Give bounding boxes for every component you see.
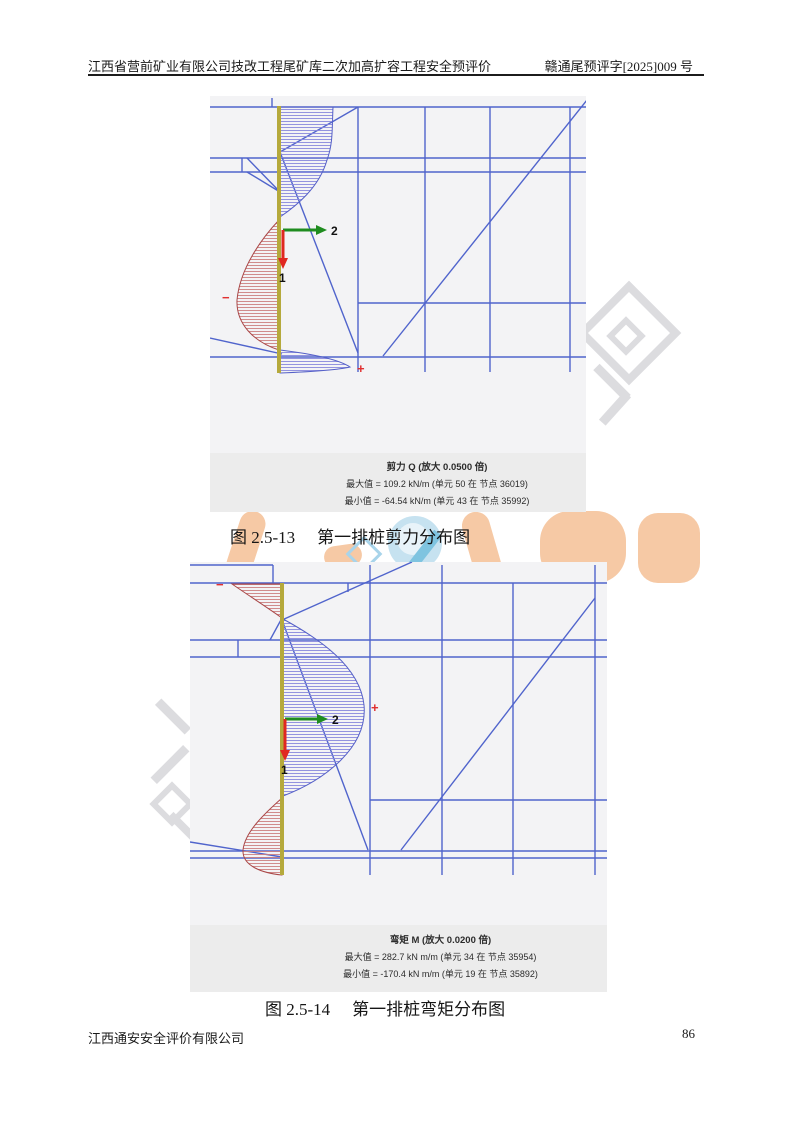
negative-region-marker: − [216, 577, 224, 592]
figure-shear-diagram: 2 1 − + 剪力 Q (放大 0.0500 倍) 最大值 = 109.2 k… [210, 96, 586, 512]
axis-2-label: 2 [331, 224, 338, 238]
figure-caption-moment: 图 2.5-14第一排桩弯矩分布图 [265, 995, 505, 1020]
watermark-stroke [599, 391, 631, 425]
positive-shear-lobe [280, 107, 333, 217]
shear-stats-max: 最大值 = 109.2 kN/m (单元 50 在 节点 36019) [210, 476, 586, 493]
negative-region-marker: − [222, 290, 230, 305]
positive-region-marker: + [371, 700, 379, 715]
header-rule [88, 74, 704, 76]
moment-stats-min: 最小值 = -170.4 kN m/m (单元 19 在 节点 35892) [190, 966, 607, 983]
figure-caption-label: 图 2.5-13 [230, 528, 295, 547]
watermark-stroke [155, 698, 191, 734]
header-document-code: 赣通尾预评字[2025]009 号 [545, 56, 693, 75]
watermark-blob [638, 513, 700, 583]
axis-1-label: 1 [279, 271, 286, 285]
positive-moment-lobe [283, 619, 364, 796]
axis-2-label: 2 [332, 713, 339, 727]
shear-plot: 2 1 − + [210, 96, 586, 456]
moment-stats-max: 最大值 = 282.7 kN m/m (单元 34 在 节点 35954) [190, 949, 607, 966]
toe-shear-lobe [280, 350, 350, 373]
footer-company-name: 江西通安安全评价有限公司 [88, 1028, 244, 1047]
moment-plot: 2 1 − + [190, 562, 607, 925]
axis-2-arrow-icon [316, 225, 327, 235]
figure-caption-title: 第一排桩剪力分布图 [317, 528, 470, 547]
figure-moment-diagram: 2 1 − + 弯矩 M (放大 0.0200 倍) 最大值 = 282.7 k… [190, 562, 607, 992]
shear-stats-title: 剪力 Q (放大 0.0500 倍) [210, 459, 586, 476]
figure-caption-label: 图 2.5-14 [265, 1000, 330, 1019]
figure-caption-title: 第一排桩弯矩分布图 [352, 1000, 505, 1019]
watermark-stroke [151, 745, 190, 784]
header-report-title: 江西省营前矿业有限公司技改工程尾矿库二次加高扩容工程安全预评价 [88, 56, 491, 75]
negative-shear-lobe [237, 220, 279, 350]
axis-1-label: 1 [281, 763, 288, 777]
shear-stats-band: 剪力 Q (放大 0.0500 倍) 最大值 = 109.2 kN/m (单元 … [210, 453, 586, 512]
figure-caption-shear: 图 2.5-13第一排桩剪力分布图 [230, 523, 470, 548]
moment-stats-band: 弯矩 M (放大 0.0200 倍) 最大值 = 282.7 kN m/m (单… [190, 925, 607, 992]
shear-stats-min: 最小值 = -64.54 kN/m (单元 43 在 节点 35992) [210, 493, 586, 510]
report-page: 江西省营前矿业有限公司技改工程尾矿库二次加高扩容工程安全预评价 赣通尾预评字[2… [0, 0, 793, 1122]
negative-moment-lobe-bottom [243, 798, 282, 875]
footer-page-number: 86 [682, 1026, 695, 1042]
positive-region-marker: + [357, 361, 365, 376]
negative-moment-lobe-top [232, 584, 282, 618]
moment-stats-title: 弯矩 M (放大 0.0200 倍) [190, 932, 607, 949]
local-axes: 2 1 [278, 224, 338, 285]
